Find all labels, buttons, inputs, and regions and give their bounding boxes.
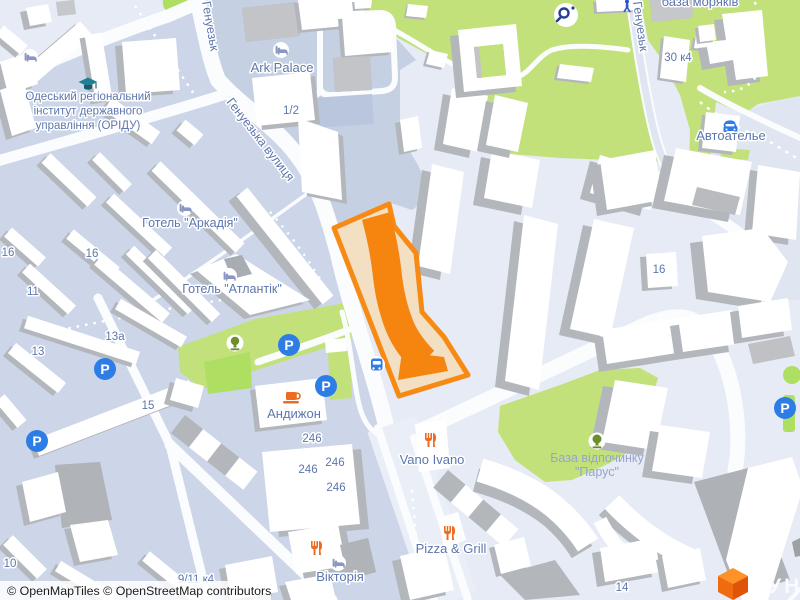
svg-text:16: 16 xyxy=(653,264,666,276)
svg-text:16: 16 xyxy=(2,247,15,259)
svg-text:13: 13 xyxy=(32,346,45,358)
svg-text:Автоателье: Автоателье xyxy=(696,128,765,143)
svg-text:Вікторія: Вікторія xyxy=(316,569,364,584)
svg-text:P: P xyxy=(780,400,789,416)
svg-text:Готель "Атлантік": Готель "Атлантік" xyxy=(182,282,282,296)
svg-text:Vano Ivano: Vano Ivano xyxy=(400,452,465,467)
svg-text:16: 16 xyxy=(86,248,99,260)
svg-text:30 к4: 30 к4 xyxy=(664,52,692,64)
svg-text:10: 10 xyxy=(4,558,17,570)
svg-text:246: 246 xyxy=(326,482,345,494)
svg-text:Одеський регіональний: Одеський регіональний xyxy=(25,91,150,103)
svg-text:Готель "Аркадія": Готель "Аркадія" xyxy=(142,216,238,230)
svg-text:P: P xyxy=(284,337,293,353)
svg-text:246: 246 xyxy=(325,457,344,469)
svg-text:Андижон: Андижон xyxy=(267,406,321,421)
svg-text:P: P xyxy=(100,361,109,377)
svg-text:управління (ОРІДУ): управління (ОРІДУ) xyxy=(36,120,141,132)
svg-text:11: 11 xyxy=(27,286,39,298)
svg-text:© OpenMapTiles © OpenStreetMap: © OpenMapTiles © OpenStreetMap contribut… xyxy=(7,584,271,598)
svg-text:P: P xyxy=(321,378,330,394)
svg-text:13а: 13а xyxy=(105,331,125,343)
svg-text:база моряків: база моряків xyxy=(662,0,739,9)
svg-text:P: P xyxy=(32,433,41,449)
svg-text:Pizza & Grill: Pizza & Grill xyxy=(416,541,487,556)
svg-text:Ark Palace: Ark Palace xyxy=(251,60,314,75)
svg-text:14: 14 xyxy=(616,582,629,594)
svg-text:15: 15 xyxy=(142,400,155,412)
svg-text:1/2: 1/2 xyxy=(283,105,299,117)
svg-text:База відпочинку: База відпочинку xyxy=(550,451,644,465)
svg-text:інститут державного: інститут державного xyxy=(34,106,143,118)
svg-text:"Парус": "Парус" xyxy=(575,465,619,479)
svg-text:246: 246 xyxy=(298,464,317,476)
svg-text:246: 246 xyxy=(302,433,321,445)
